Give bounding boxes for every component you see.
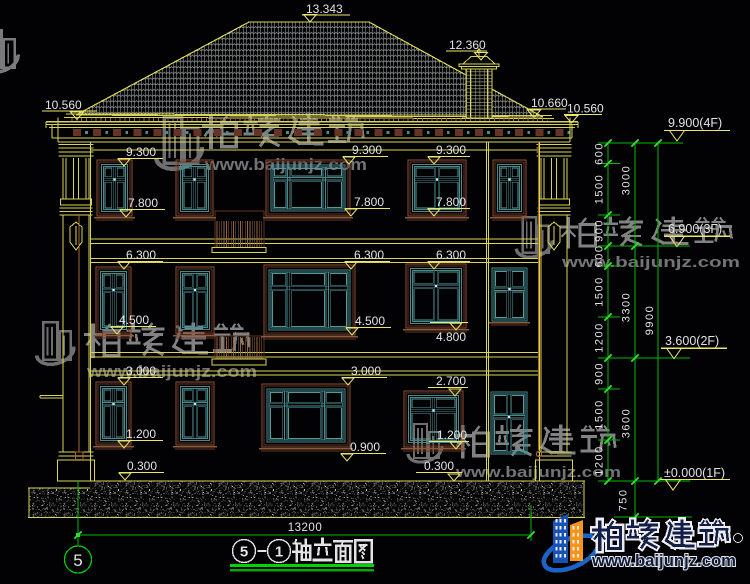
svg-text:9.300: 9.300: [126, 145, 156, 159]
svg-text:1500: 1500: [594, 174, 606, 204]
svg-text:13200: 13200: [288, 522, 322, 534]
svg-text:13.343: 13.343: [306, 2, 343, 16]
svg-text:www.baijunjz.com: www.baijunjz.com: [561, 254, 740, 271]
svg-text:3.000: 3.000: [126, 364, 156, 378]
svg-text:5: 5: [73, 551, 82, 570]
svg-text:7.800: 7.800: [354, 195, 384, 209]
svg-text:4.500: 4.500: [119, 313, 149, 327]
svg-text:10.660: 10.660: [531, 96, 568, 110]
svg-text:www.baijunjz.com: www.baijunjz.com: [204, 155, 367, 174]
svg-text:600: 600: [594, 245, 606, 268]
svg-text:4.800: 4.800: [436, 330, 466, 344]
svg-text:±0.000(1F): ±0.000(1F): [664, 466, 725, 480]
svg-text:1500: 1500: [594, 399, 606, 429]
svg-text:6.300: 6.300: [354, 248, 384, 262]
svg-text:3600: 3600: [621, 408, 633, 438]
svg-text:12.360: 12.360: [449, 38, 486, 52]
svg-text:10.560: 10.560: [567, 102, 604, 116]
svg-text:9.300: 9.300: [352, 143, 382, 157]
svg-text:7.800: 7.800: [128, 196, 158, 210]
svg-text:4.500: 4.500: [355, 314, 385, 328]
svg-text:600: 600: [594, 142, 606, 165]
svg-text:0.300: 0.300: [424, 459, 454, 473]
svg-text:0.900: 0.900: [350, 440, 380, 454]
svg-text:1.200: 1.200: [126, 427, 156, 441]
svg-text:900: 900: [594, 362, 606, 385]
svg-text:www.baijunjz.com: www.baijunjz.com: [591, 552, 736, 570]
svg-text:3300: 3300: [621, 292, 633, 322]
svg-text:3000: 3000: [621, 165, 633, 195]
svg-text:1.200: 1.200: [437, 428, 467, 442]
svg-text:0.300: 0.300: [127, 459, 157, 473]
svg-text:6.300: 6.300: [436, 248, 466, 262]
svg-text:3.600(2F): 3.600(2F): [665, 334, 719, 348]
svg-text:900: 900: [594, 219, 606, 242]
svg-text:9.900(4F): 9.900(4F): [668, 116, 722, 130]
svg-text:1500: 1500: [594, 276, 606, 306]
svg-text:2.700: 2.700: [436, 374, 466, 388]
svg-text:5: 5: [240, 544, 248, 561]
svg-text:1200: 1200: [594, 445, 606, 475]
svg-text:750: 750: [618, 489, 630, 512]
svg-text:3.000: 3.000: [351, 364, 381, 378]
svg-text:1: 1: [275, 544, 283, 561]
svg-text:6.900(3F): 6.900(3F): [668, 222, 722, 236]
svg-text:1200: 1200: [594, 322, 606, 352]
svg-text:9.300: 9.300: [436, 143, 466, 157]
svg-text:9900: 9900: [644, 305, 656, 335]
svg-text:6.300: 6.300: [126, 248, 156, 262]
svg-text:10.560: 10.560: [45, 98, 82, 112]
svg-text:7.800: 7.800: [436, 195, 466, 209]
